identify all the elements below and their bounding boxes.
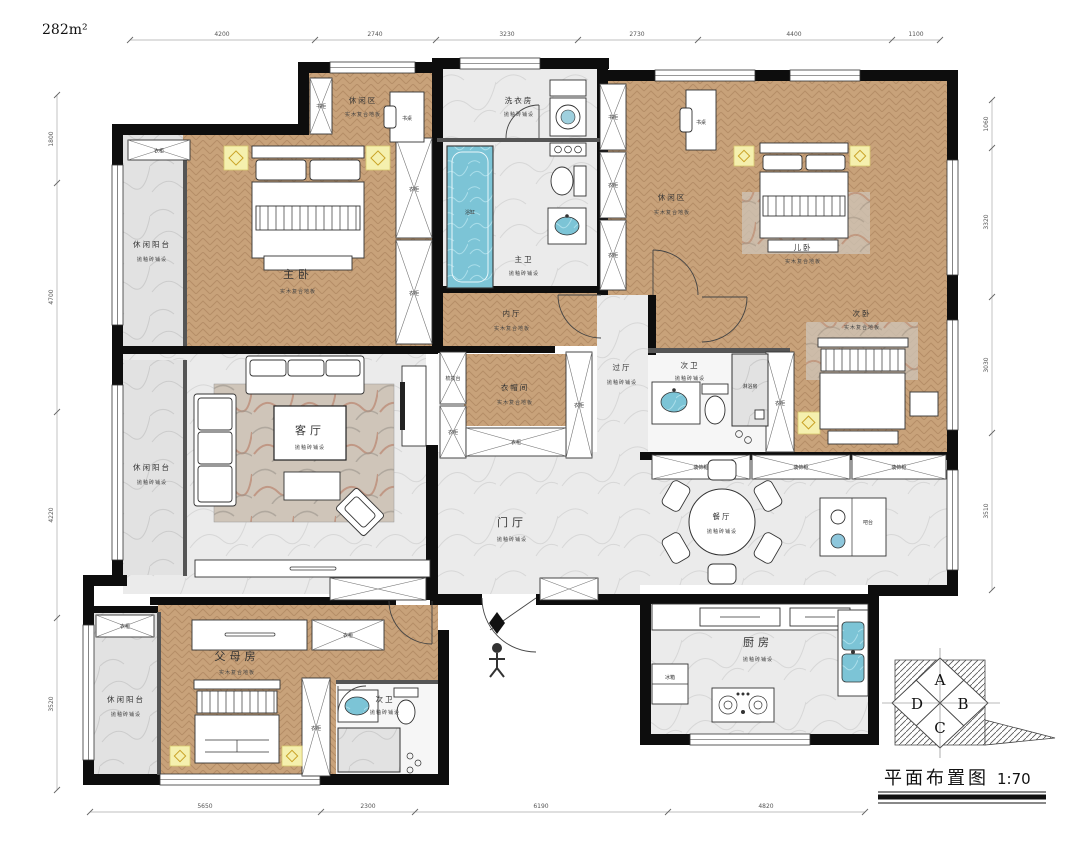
wardrobe-cabinet: 衣柜: [600, 152, 626, 218]
balcony2-label: 休闲阳台: [133, 462, 171, 472]
window: [790, 70, 860, 81]
dresser-cabinet: 梳妆台: [440, 352, 466, 404]
bedside-lamp-icon: [224, 146, 248, 170]
dining-chair: [708, 460, 736, 480]
fridge-label: 冰箱: [665, 674, 675, 681]
living-room-label-box: 客厅 抛釉砖铺设: [274, 406, 346, 460]
shower-label: 淋浴房: [742, 383, 757, 390]
bathtub: 浴缸: [447, 146, 493, 288]
svg-text:衣柜: 衣柜: [608, 182, 618, 189]
svg-text:实木复合地板: 实木复合地板: [654, 209, 690, 216]
svg-text:实木复合地板: 实木复合地板: [219, 669, 255, 676]
svg-text:实木复合地板: 实木复合地板: [494, 325, 530, 332]
entry-marker: [489, 612, 505, 677]
deco-cabinet: 装饰柜: [852, 455, 946, 479]
svg-text:抛釉砖铺设: 抛釉砖铺设: [607, 379, 637, 386]
cloakroom-label: 衣帽间: [501, 382, 530, 392]
parents-room-label: 父母房: [215, 650, 260, 663]
second-bath-label: 次卫: [681, 360, 700, 370]
tv-icon: [400, 382, 405, 430]
bedside-lamp-icon: [734, 146, 754, 166]
bedside-lamp-icon: [798, 412, 820, 434]
bookcase-cabinet: 书柜: [310, 78, 332, 134]
kitchen-label: 厨房: [743, 636, 773, 649]
svg-text:实木复合地板: 实木复合地板: [844, 324, 880, 331]
bar-counter: 吧台: [820, 498, 886, 556]
svg-text:抛釉砖铺设: 抛釉砖铺设: [675, 375, 705, 382]
wardrobe-cabinet: 衣柜: [766, 352, 794, 452]
title-block: 平面布置图 1:70: [878, 768, 1046, 803]
compass-letter-a: A: [934, 671, 946, 689]
fridge-icon: 冰箱: [652, 664, 688, 704]
svg-text:抛釉砖铺设: 抛釉砖铺设: [111, 711, 141, 718]
dim-top-1: 4200: [214, 31, 229, 38]
svg-text:实木复合地板: 实木复合地板: [497, 399, 533, 406]
dim-bottom-3: 6190: [533, 803, 548, 810]
window: [947, 160, 958, 275]
svg-text:衣柜: 衣柜: [775, 400, 785, 407]
toilet-icon: [551, 166, 586, 196]
shower-room: 淋浴房: [732, 354, 768, 426]
svg-text:抛釉砖铺设: 抛釉砖铺设: [370, 709, 400, 716]
kitchen-sink-icon: [838, 610, 868, 696]
wardrobe-cabinet: 衣柜: [96, 615, 154, 637]
floor-plan-page: 衣柜 衣柜 衣柜 书柜 书柜 衣柜 衣柜 梳妆台 衣柜 衣柜 衣柜 衣柜 装饰柜…: [0, 0, 1066, 842]
foyer-label: 门厅: [497, 515, 527, 529]
bedside-lamp-icon: [366, 146, 390, 170]
svg-text:抛釉砖铺设: 抛釉砖铺设: [497, 536, 527, 543]
svg-text:实木复合地板: 实木复合地板: [280, 288, 316, 295]
laundry-fixtures: [550, 80, 586, 156]
svg-text:实木复合地板: 实木复合地板: [345, 111, 381, 118]
balcony3-label: 休闲阳台: [107, 694, 145, 704]
inner-hall-label: 内厅: [503, 308, 522, 318]
svg-text:衣柜: 衣柜: [409, 186, 419, 193]
svg-text:衣柜: 衣柜: [574, 402, 584, 409]
dining-chair: [708, 564, 736, 584]
wardrobe-cabinet: 衣柜: [312, 620, 384, 650]
dim-left-4: 3520: [48, 696, 55, 711]
compass-letter-b: B: [957, 695, 968, 713]
wardrobe-cabinet: 衣柜: [440, 406, 466, 458]
bar-stool: [831, 534, 845, 548]
svg-text:抛釉砖铺设: 抛釉砖铺设: [137, 256, 167, 263]
balcony1-label: 休闲阳台: [133, 239, 171, 249]
pass-hall-label: 过厅: [613, 362, 632, 372]
svg-text:装饰柜: 装饰柜: [793, 464, 808, 471]
master-bath-label: 主卫: [515, 254, 534, 264]
svg-text:衣柜: 衣柜: [448, 429, 458, 436]
bookcase-cabinet: 书柜: [600, 84, 626, 150]
compass-letter-d: D: [911, 695, 923, 713]
wardrobe-cabinet: 衣柜: [566, 352, 592, 458]
svg-text:抛釉砖铺设: 抛釉砖铺设: [137, 479, 167, 486]
master-bedroom-label: 主卧: [283, 268, 313, 281]
window: [83, 625, 94, 760]
dim-bottom-1: 5650: [197, 803, 212, 810]
dim-right-3: 3030: [983, 357, 990, 372]
drawing-title: 平面布置图: [884, 768, 989, 789]
shoe-cabinet: [330, 578, 426, 600]
svg-text:衣柜: 衣柜: [511, 439, 521, 446]
window: [947, 320, 958, 430]
wardrobe-cabinet: 衣柜: [600, 220, 626, 290]
sofa-back: [246, 356, 364, 394]
dim-left-1: 1800: [48, 131, 55, 146]
living-room-floor-label: 抛釉砖铺设: [295, 444, 325, 451]
dim-bottom-2: 2300: [360, 803, 375, 810]
window: [330, 62, 415, 73]
vanity-sink: [338, 690, 378, 722]
bar-label: 吧台: [863, 519, 873, 526]
svg-text:装饰柜: 装饰柜: [693, 464, 708, 471]
tv-cabinet: [400, 366, 426, 446]
svg-text:衣柜: 衣柜: [608, 252, 618, 259]
leisure-tl-label: 休闲区: [349, 95, 378, 105]
window: [112, 165, 123, 325]
svg-text:抛釉砖铺设: 抛釉砖铺设: [504, 111, 534, 118]
svg-text:书柜: 书柜: [316, 103, 326, 110]
nightstand: [910, 392, 938, 416]
floor-inner-hall: [443, 293, 597, 346]
dim-left-2: 4700: [48, 289, 55, 304]
svg-text:书柜: 书柜: [608, 114, 618, 121]
wardrobe-cabinet: 衣柜: [396, 138, 432, 238]
coffee-table: [284, 472, 340, 500]
bedside-lamp-icon: [282, 746, 302, 766]
window: [947, 470, 958, 570]
desk-tr-label: 书桌: [696, 119, 706, 126]
dim-top-3: 3230: [499, 31, 514, 38]
living-room-label: 客厅: [295, 423, 325, 437]
dim-top-6: 1100: [908, 31, 923, 38]
washing-machine-icon: [550, 98, 586, 136]
window: [112, 385, 123, 560]
bedside-lamp-icon: [850, 146, 870, 166]
desk-tl-label: 书桌: [402, 115, 412, 122]
svg-text:衣柜: 衣柜: [154, 148, 164, 155]
window: [690, 734, 810, 745]
laundry-label: 洗衣房: [505, 95, 534, 105]
compass-letter-c: C: [934, 719, 945, 737]
bar-stool: [831, 510, 845, 524]
dining-floor-label: 抛釉砖铺设: [707, 528, 737, 535]
svg-text:抛釉砖铺设: 抛釉砖铺设: [743, 656, 773, 663]
person-icon: [489, 643, 505, 677]
wardrobe-cabinet: 衣柜: [396, 240, 432, 344]
drawing-scale: 1:70: [997, 770, 1031, 788]
vanity-sink: [652, 382, 700, 424]
area-label: 282m²: [42, 22, 88, 38]
floor-pass-hall: [597, 295, 652, 452]
parents-dresser: [192, 620, 307, 650]
wardrobe-cabinet: 衣柜: [466, 428, 566, 456]
svg-text:抛釉砖铺设: 抛釉砖铺设: [509, 270, 539, 277]
bedside-lamp-icon: [170, 746, 190, 766]
svg-text:装饰柜: 装饰柜: [891, 464, 906, 471]
wardrobe-cabinet: 衣柜: [302, 678, 330, 776]
window: [460, 58, 540, 69]
kids-bedroom-label: 儿卧: [794, 243, 813, 252]
svg-text:衣柜: 衣柜: [120, 623, 130, 630]
dim-left-3: 4220: [48, 507, 55, 522]
hall-cabinet: [540, 578, 598, 600]
deco-cabinet: 装饰柜: [752, 455, 850, 479]
svg-text:实木复合地板: 实木复合地板: [785, 258, 821, 265]
dim-right-2: 3320: [983, 214, 990, 229]
dim-top-2: 2740: [367, 31, 382, 38]
sideboard: [195, 560, 430, 577]
second-bedroom-label: 次卧: [853, 308, 872, 318]
floor-plan-drawing: 衣柜 衣柜 衣柜 书柜 书柜 衣柜 衣柜 梳妆台 衣柜 衣柜 衣柜 衣柜 装饰柜…: [0, 0, 1066, 842]
bathtub-label: 浴缸: [465, 209, 475, 216]
elevation-compass: A B C D: [882, 648, 1055, 758]
dining-room-label: 餐厅: [713, 512, 732, 521]
second-bath2-label: 次卫: [376, 694, 395, 704]
dim-right-4: 3510: [983, 503, 990, 518]
dim-top-5: 4400: [786, 31, 801, 38]
svg-text:衣柜: 衣柜: [311, 725, 321, 732]
wardrobe-cabinet: 衣柜: [128, 140, 190, 160]
dim-top-4: 2730: [629, 31, 644, 38]
entry-door-arc: [482, 598, 536, 652]
laundry-shelf: [550, 143, 586, 156]
dim-right-1: 1060: [983, 116, 990, 131]
entry-arrow-icon: [489, 612, 505, 634]
stove-icon: [712, 688, 774, 722]
window: [655, 70, 755, 81]
dining-table: [689, 489, 755, 555]
dim-bottom-4: 4820: [758, 803, 773, 810]
svg-text:梳妆台: 梳妆台: [445, 375, 460, 382]
leisure-tr-label: 休闲区: [658, 192, 687, 202]
svg-text:衣柜: 衣柜: [409, 290, 419, 297]
svg-text:衣柜: 衣柜: [343, 632, 353, 639]
shower-area: [338, 728, 400, 772]
window: [160, 774, 320, 785]
vanity-sink: [548, 208, 586, 244]
sofa-left: [194, 394, 236, 506]
